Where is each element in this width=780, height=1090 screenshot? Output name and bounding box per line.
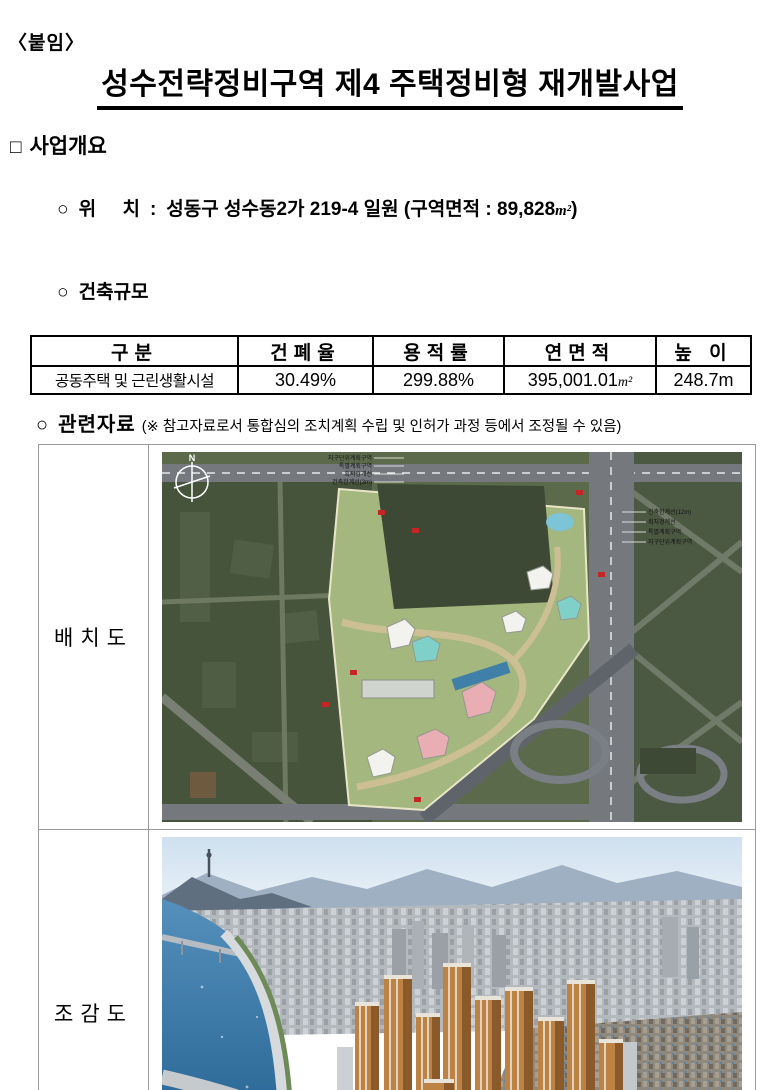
building-scale-label: 건축규모: [79, 282, 149, 303]
bird-eye-image: [162, 837, 742, 1090]
callout-label: 건축한계선(3m): [332, 478, 372, 486]
cell-height: 248.7m: [656, 366, 751, 394]
site-plan-cell: N 지구단위계획구역: [149, 445, 756, 830]
callout-label: 지구단위계획구역: [328, 454, 372, 462]
site-plan-image: N 지구단위계획구역: [162, 452, 742, 822]
col-header-gfa: 연면적: [504, 336, 656, 366]
col-header-far: 용적률: [373, 336, 504, 366]
related-data-label: 관련자료: [58, 414, 136, 436]
bird-eye-cell: [149, 830, 756, 1090]
section-overview-heading: □사업개요: [10, 130, 780, 160]
circle-bullet-icon: ○: [57, 282, 68, 303]
cell-far: 299.88%: [373, 366, 504, 394]
site-plan-label: 배치도: [39, 445, 149, 830]
location-value: 성동구 성수동2가 219-4 일원 (구역면적 : 89,828: [166, 199, 555, 220]
bird-eye-row: 조감도: [39, 830, 756, 1090]
location-separator: :: [150, 199, 156, 220]
building-spec-table: 구분 건폐율 용적률 연면적 높 이 공동주택 및 근린생활시설 30.49% …: [30, 335, 752, 395]
callout-label: 획지경계선: [648, 518, 676, 526]
location-label: 위 치: [79, 199, 140, 220]
spec-header-row: 구분 건폐율 용적률 연면적 높 이: [31, 336, 751, 366]
cell-coverage: 30.49%: [238, 366, 373, 394]
circle-bullet-icon: ○: [57, 199, 68, 220]
cell-gfa: 395,001.01m²: [504, 366, 656, 394]
bird-eye-label: 조감도: [39, 830, 149, 1090]
right-parcels: [632, 452, 742, 822]
col-header-category: 구분: [31, 336, 238, 366]
building-scale-line: ○건축규모: [36, 255, 780, 326]
gfa-unit: m²: [618, 374, 632, 390]
related-data-note: (※ 참고자료로서 통합심의 조치계획 수립 및 인허가 과정 등에서 조정될 …: [142, 419, 622, 435]
callout-label: 특별계획구역: [339, 462, 372, 470]
document-page: 〈붙임〉 성수전략정비구역 제4 주택정비형 재개발사업 □사업개요 ○위 치:…: [0, 0, 780, 1090]
site-plan-row: 배치도: [39, 445, 756, 830]
circle-bullet-icon: ○: [36, 414, 48, 436]
square-bullet-icon: □: [10, 137, 21, 158]
page-title: 성수전략정비구역 제4 주택정비형 재개발사업: [97, 59, 683, 110]
location-close-paren: ): [571, 199, 577, 220]
title-wrap: 성수전략정비구역 제4 주택정비형 재개발사업: [0, 59, 780, 110]
col-header-height: 높 이: [656, 336, 751, 366]
attachment-label: 〈붙임〉: [8, 28, 780, 55]
spec-data-row: 공동주택 및 근린생활시설 30.49% 299.88% 395,001.01m…: [31, 366, 751, 394]
callout-label: 건축한계선(12m): [648, 508, 691, 516]
compass-north-label: N: [189, 453, 196, 463]
col-header-coverage: 건폐율: [238, 336, 373, 366]
callout-label: 특별계획구역: [648, 528, 681, 536]
section-overview-label: 사업개요: [29, 135, 106, 158]
location-line: ○위 치:성동구 성수동2가 219-4 일원 (구역면적 : 89,828m²…: [36, 172, 780, 243]
callout-label: 획지경계선: [344, 470, 372, 478]
location-area-unit: m²: [555, 203, 571, 219]
cell-category: 공동주택 및 근린생활시설: [31, 366, 238, 394]
figure-table: 배치도: [38, 444, 756, 1090]
callout-label: 지구단위계획구역: [648, 538, 692, 546]
related-data-line: ○관련자료(※ 참고자료로서 통합심의 조치계획 수립 및 인허가 과정 등에서…: [36, 408, 780, 437]
gfa-value: 395,001.01: [528, 370, 618, 390]
